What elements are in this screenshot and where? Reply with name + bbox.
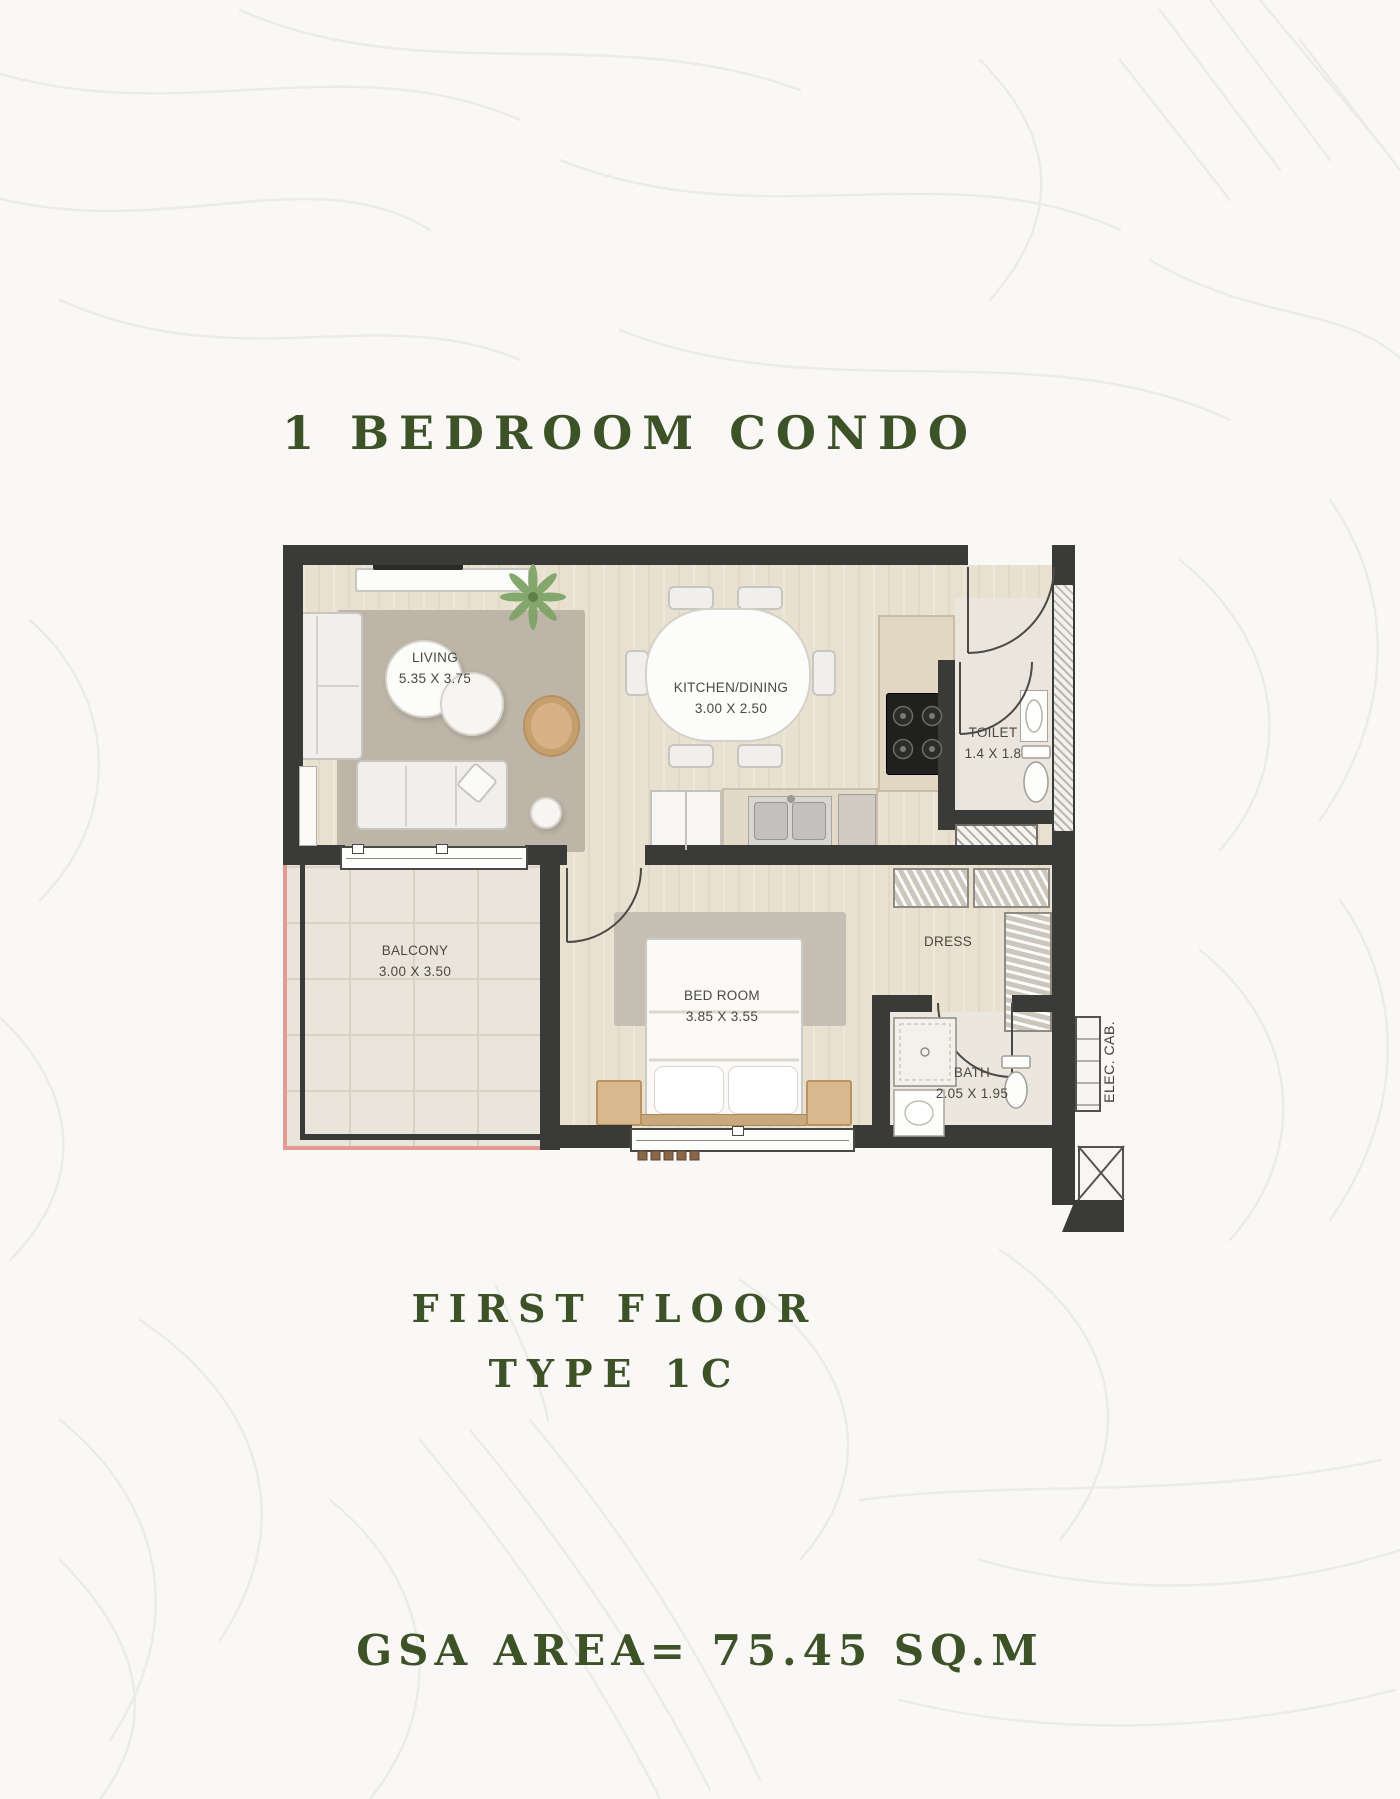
floor-lamp	[530, 797, 562, 829]
nightstand	[596, 1080, 642, 1126]
balcony-rail	[300, 865, 305, 1140]
wall-bath-bottom	[853, 1125, 1052, 1148]
balcony-outline-red	[283, 1146, 545, 1150]
rattan-chair	[523, 695, 580, 757]
room-label-bath: BATH 2.05 X 1.95	[912, 1063, 1032, 1105]
wall-toilet-bottom	[938, 810, 1052, 824]
dining-table	[645, 608, 811, 742]
tv-console	[355, 568, 530, 592]
room-dims: 3.00 X 3.50	[335, 962, 495, 983]
wall-bedroom-bath	[872, 995, 890, 1145]
wardrobe	[893, 868, 969, 908]
pillow	[728, 1066, 798, 1114]
room-name: ELEC. CAB.	[1099, 1007, 1121, 1117]
fridge	[650, 790, 722, 852]
page-title: 1 BEDROOM CONDO	[0, 406, 1260, 460]
room-label-bedroom: BED ROOM 3.85 X 3.55	[642, 986, 802, 1028]
room-dims: 2.05 X 1.95	[912, 1084, 1032, 1105]
floor-name: FIRST FLOOR	[0, 1276, 1230, 1341]
room-dims: 1.4 X 1.8	[943, 744, 1043, 765]
room-label-balcony: BALCONY 3.00 X 3.50	[335, 941, 495, 983]
wall-bedroom-top	[645, 845, 872, 865]
window-handle	[436, 844, 448, 854]
shaft-box	[1078, 1146, 1124, 1202]
nightstand	[806, 1080, 852, 1126]
area-label: GSA AREA= 75.45 SQ.M	[0, 1626, 1400, 1675]
room-name: BATH	[912, 1063, 1032, 1084]
electrical-cabinet-box	[1075, 1016, 1101, 1112]
room-label-dress: DRESS	[898, 932, 998, 953]
room-label-living: LIVING 5.35 X 3.75	[355, 648, 515, 690]
dining-chair	[668, 744, 714, 768]
pillow	[654, 1066, 724, 1114]
sink-basin	[754, 802, 788, 840]
wall-balcony-bedroom	[540, 865, 560, 1150]
wall-dress-bath	[890, 995, 932, 1012]
wall-top	[283, 545, 968, 565]
wardrobe	[1004, 912, 1052, 1032]
wall-balcony-right	[525, 845, 567, 865]
room-name: BED ROOM	[642, 986, 802, 1007]
wall-balcony-left	[283, 845, 345, 865]
type-name: TYPE 1C	[0, 1341, 1230, 1406]
room-label-elec-cab: ELEC. CAB.	[1099, 1007, 1121, 1117]
dining-chair	[737, 744, 783, 768]
room-name: TOILET	[943, 723, 1043, 744]
room-name: BALCONY	[335, 941, 495, 962]
sink-basin	[792, 802, 826, 840]
wall-unit	[299, 766, 317, 846]
wall-hall-dress	[872, 845, 1052, 865]
room-label-toilet: TOILET 1.4 X 1.8	[943, 723, 1043, 765]
room-dims: 3.85 X 3.55	[642, 1007, 802, 1028]
balcony-sliding-window	[340, 846, 528, 870]
balcony-tile-floor	[287, 865, 540, 1146]
headboard	[641, 1114, 807, 1126]
balcony-outline-red	[283, 862, 287, 1150]
wall-dress-bath	[1012, 995, 1052, 1012]
sofa-left	[299, 612, 363, 760]
dining-chair	[668, 586, 714, 610]
room-name: KITCHEN/DINING	[651, 678, 811, 699]
window-handle	[352, 844, 364, 854]
balcony-rail	[300, 1134, 540, 1140]
room-name: LIVING	[355, 648, 515, 669]
service-shaft-strip	[1054, 585, 1073, 831]
wardrobe	[973, 868, 1050, 908]
dining-chair	[737, 586, 783, 610]
room-label-kitchen-dining: KITCHEN/DINING 3.00 X 2.50	[651, 678, 811, 720]
floor-plan: LIVING 5.35 X 3.75 KITCHEN/DINING 3.00 X…	[0, 0, 1400, 1799]
room-name: DRESS	[898, 932, 998, 953]
window-handle	[732, 1126, 744, 1136]
dishwasher	[838, 794, 876, 850]
bedroom-window	[630, 1128, 855, 1152]
wall-right-extension	[1052, 1145, 1075, 1205]
floor-type-label: FIRST FLOOR TYPE 1C	[0, 1276, 1230, 1407]
dining-chair	[812, 650, 836, 696]
page: 1 BEDROOM CONDO	[0, 0, 1400, 1799]
room-dims: 3.00 X 2.50	[651, 699, 811, 720]
wall-bedroom-bottom	[560, 1125, 632, 1148]
room-dims: 5.35 X 3.75	[355, 669, 515, 690]
